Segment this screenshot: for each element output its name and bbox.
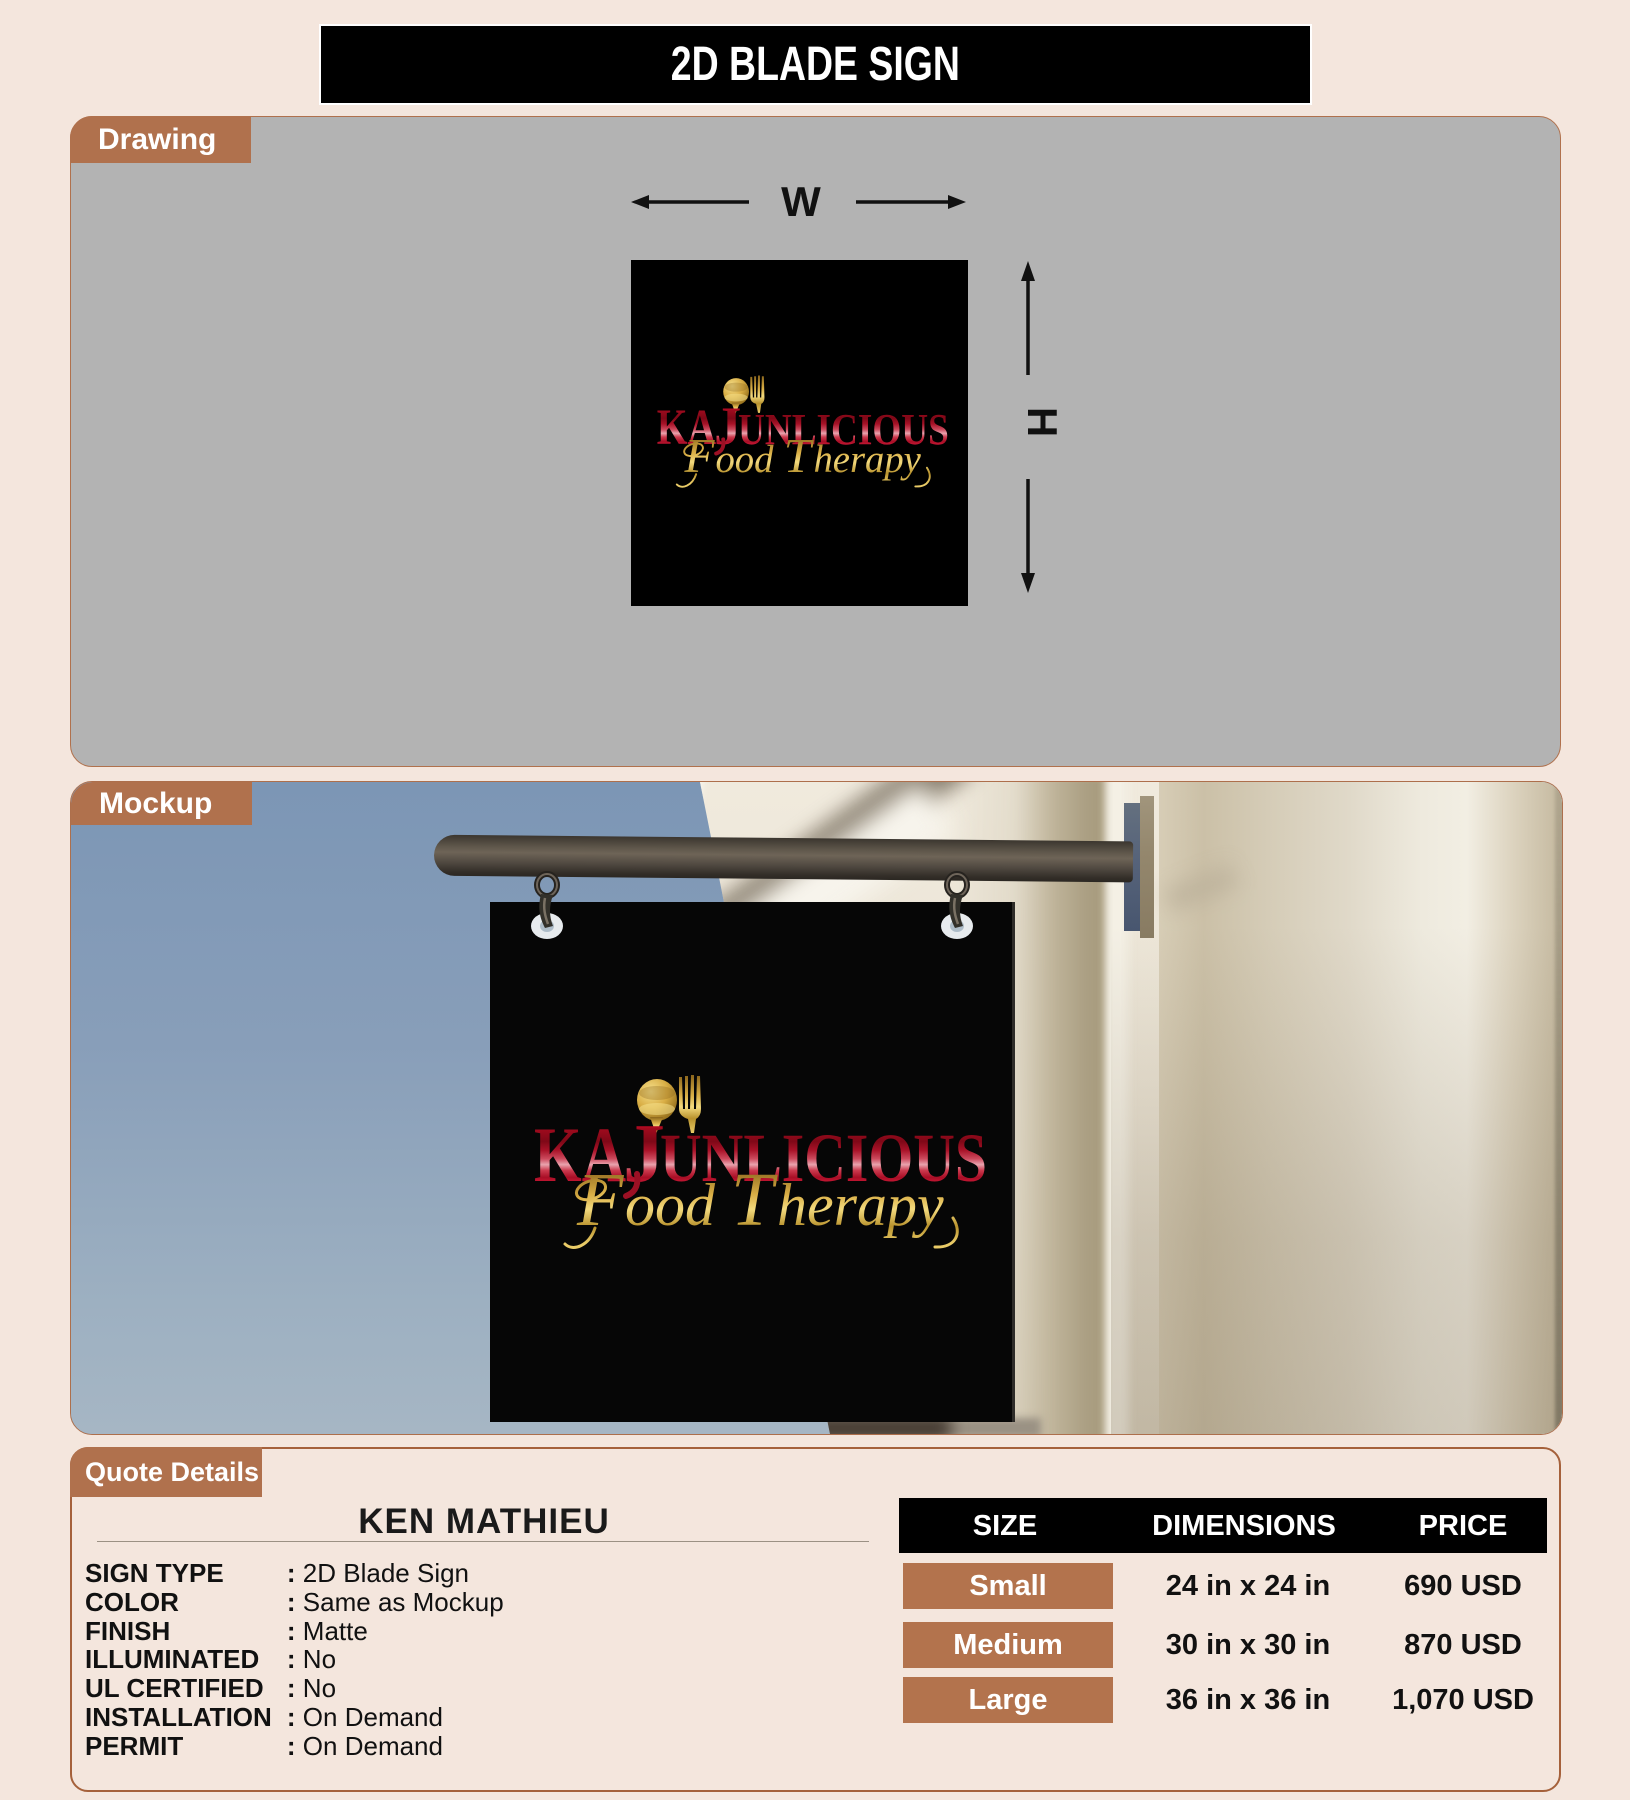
svg-text:H: H	[1019, 407, 1066, 437]
svg-text:W: W	[781, 178, 821, 225]
